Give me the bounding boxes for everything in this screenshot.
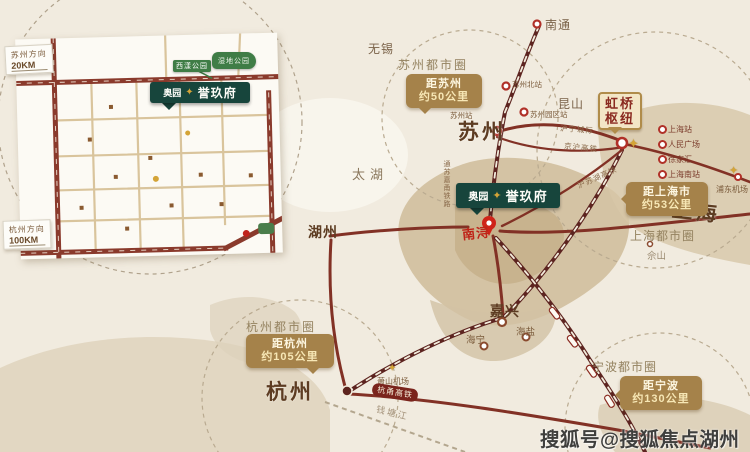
sh-station-dot-2 <box>658 140 667 149</box>
tag-hangzhou-line1: 杭州方向 <box>9 223 45 235</box>
sh-station-label-4: 上海南站 <box>668 170 700 179</box>
road-hangzhou-huzhou <box>330 240 346 390</box>
inset-project-logo-badge: 奥园 ✦ 誉玖府 <box>150 82 250 103</box>
callout-suzhou-line2: 约50公里 <box>413 91 475 104</box>
label-ningbo-metro: 宁波都市圈 <box>592 358 657 375</box>
callout-suzhou: 距苏州 约50公里 <box>406 74 482 108</box>
callout-ningbo-line2: 约130公里 <box>627 393 695 406</box>
town-haiyan: 海盐 <box>516 324 535 338</box>
callout-ningbo-line1: 距宁波 <box>627 380 695 393</box>
callout-shanghai-line1: 距上海市 <box>633 186 701 199</box>
inset-logo-pointer <box>160 101 178 119</box>
label-hangzhou-metro: 杭州都市圈 <box>246 318 316 335</box>
tag-suzhou-line2: 20KM <box>11 59 48 72</box>
station-suzhou-label: 苏州站 <box>450 110 473 121</box>
project-logo-leaf-icon: ✦ <box>492 189 501 202</box>
hongqiao-airport-icon: ✦ <box>628 136 639 152</box>
project-logo-brand: 奥园 <box>468 188 488 203</box>
station-suzhou-north-label: 苏州北站 <box>512 79 542 90</box>
town-sheshan: 佘山 <box>647 248 666 262</box>
station-suzhou-park-label: 苏州园区站 <box>530 109 568 120</box>
city-jiaxing: 嘉兴 <box>490 301 520 321</box>
town-haining: 海宁 <box>466 332 485 346</box>
inset-park-patch <box>258 223 274 234</box>
location-map: 苏州方向 20KM 杭州方向 100KM 西漾公园 湿地公园 奥园 ✦ 誉玖府 … <box>0 0 750 452</box>
inset-logo-name: 誉玖府 <box>198 84 237 101</box>
city-wuxi: 无锡 <box>368 40 394 57</box>
city-nantong: 南通 <box>545 16 571 33</box>
callout-shanghai-line2: 约53公里 <box>633 199 701 212</box>
sohu-watermark: 搜狐号@搜狐焦点湖州站 <box>540 423 750 452</box>
hongqiao-hub-badge: 虹桥 枢纽 <box>598 92 642 130</box>
rail-tongsujiayong-label: 通苏嘉甬铁路 <box>441 160 451 208</box>
sh-station-label-3: 徐家汇 <box>668 155 692 164</box>
station-dot-hangzhou <box>342 386 352 396</box>
hub-line1: 虹桥 <box>605 96 635 111</box>
station-dot-nantong <box>534 21 541 28</box>
label-suzhou-metro: 苏州都市圈 <box>398 56 468 73</box>
sh-station-label-2: 人民广场 <box>668 140 700 149</box>
callout-hangzhou-line2: 约105公里 <box>253 351 327 364</box>
callout-hangzhou-line1: 距杭州 <box>253 338 327 351</box>
sh-station-south: 上海南站 <box>668 169 700 180</box>
sh-station-xujiahui: 徐家汇 <box>668 154 692 165</box>
pudong-airport-icon: ✦ <box>729 164 738 177</box>
inset-logo-brand: 奥园 <box>163 86 181 99</box>
label-shanghai-metro: 上海都市圈 <box>630 227 695 244</box>
sh-station-dot-4 <box>658 170 667 179</box>
inset-logo-leaf-icon: ✦ <box>185 87 193 98</box>
callout-ningbo: 距宁波 约130公里 <box>620 376 702 410</box>
callout-suzhou-line1: 距苏州 <box>413 78 475 91</box>
sh-station-label-1: 上海站 <box>668 125 692 134</box>
station-dot-suzhou-park <box>521 109 528 116</box>
callout-ningbo-pointer <box>608 388 622 402</box>
callout-shanghai-pointer <box>614 192 628 206</box>
inset-park2-badge: 湿地公园 <box>212 52 256 69</box>
pudong-airport-label: 浦东机场 <box>716 184 748 195</box>
sh-station-renmin: 人民广场 <box>668 139 700 150</box>
sh-station-dot-1 <box>658 125 667 134</box>
project-logo-badge: 奥园 ✦ 誉玖府 <box>456 183 560 208</box>
inset-direction-tag-suzhou: 苏州方向 20KM <box>4 44 53 75</box>
lake-taihu-label: 太湖 <box>352 164 388 183</box>
rail-huning-label: 沪宁城际 <box>560 123 595 136</box>
callout-shanghai: 距上海市 约53公里 <box>626 182 708 216</box>
xiaoshan-airport-icon: ✦ <box>388 363 396 374</box>
sh-station-dot-3 <box>658 155 667 164</box>
sh-station-shanghai: 上海站 <box>668 124 692 135</box>
inset-direction-tag-hangzhou: 杭州方向 100KM <box>3 219 52 250</box>
hub-line2: 枢纽 <box>605 111 635 126</box>
project-logo-name: 誉玖府 <box>506 186 548 205</box>
tag-hangzhou-line2: 100KM <box>9 234 45 246</box>
station-dot-suzhou-north <box>503 83 510 90</box>
callout-suzhou-pointer <box>418 107 432 121</box>
hub-pointer <box>608 127 622 141</box>
city-huzhou: 湖州 <box>308 222 338 242</box>
project-logo-pointer <box>468 206 486 224</box>
project-town-label: 南浔 <box>461 222 491 244</box>
callout-hangzhou: 距杭州 约105公里 <box>246 334 334 368</box>
callout-hangzhou-pointer <box>306 367 320 381</box>
inset-park1-badge: 西漾公园 <box>173 60 211 72</box>
